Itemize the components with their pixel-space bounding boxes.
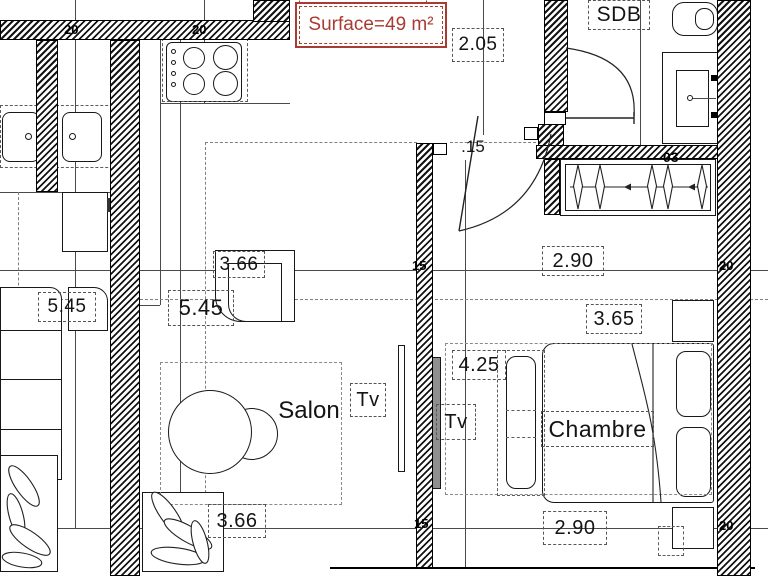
nightstand-zone-box	[658, 526, 684, 556]
room-label-sdb: SDB	[588, 0, 650, 30]
wall-right	[717, 0, 751, 576]
entry-door-leaf	[459, 116, 478, 231]
wall-party	[110, 40, 140, 576]
salon-zone-outline	[160, 362, 342, 505]
sofa-section	[0, 379, 62, 430]
wall-sdb-left	[544, 0, 568, 112]
room-label-chambre: Chambre	[541, 411, 654, 447]
dimension-partition-thickness: .15	[453, 136, 493, 158]
grid-line-left	[75, 0, 76, 528]
dimension-chambre-depth: 4.25	[452, 350, 506, 380]
dashed-line-hall-a	[205, 142, 417, 143]
toilet-bowl	[695, 8, 714, 30]
wall-thickness-label: 20	[719, 518, 733, 533]
wall-center-partition	[416, 143, 433, 568]
surface-area-badge: Surface=49 m²	[295, 2, 447, 48]
stove-zone-box	[162, 38, 248, 102]
wall-top	[0, 20, 290, 40]
wall-dressing-top	[536, 145, 718, 159]
dimension-dressing-width: 2.90	[542, 246, 604, 276]
wall-thickness-label: 20	[64, 22, 78, 37]
wardrobe-inner	[565, 164, 711, 211]
bottom-facade-line	[330, 567, 755, 569]
kitchen-counter-step	[140, 305, 160, 306]
dimension-entry-width: 2.05	[452, 28, 504, 62]
wall-thickness-label: 20	[192, 22, 206, 37]
wall-thickness-label: 20	[719, 258, 733, 273]
nightstand	[672, 300, 714, 342]
label-tv-chambre: Tv	[436, 404, 476, 440]
wall-top-corner	[253, 0, 290, 22]
plant-pot	[0, 455, 58, 572]
fridge	[62, 192, 108, 252]
wall-thickness-label: 15	[412, 258, 426, 273]
dresser-divider	[506, 437, 536, 438]
surface-area-label: Surface=49 m²	[299, 6, 443, 44]
floor-plan: Surface=49 m² 2.05 SDB .15 2.90 5.45 5.4…	[0, 0, 768, 576]
door-jamb	[544, 112, 566, 125]
shower-valve-line	[693, 98, 716, 99]
sink-zone-box	[56, 105, 118, 168]
room-label-salon: Salon	[272, 396, 346, 426]
dimension-chambre-width: 2.90	[543, 511, 607, 545]
bathroom-door-swing-arc	[566, 48, 634, 116]
kitchen-counter-edge	[160, 40, 161, 305]
dimension-bed-width: 3.65	[586, 304, 642, 334]
door-jamb	[524, 127, 538, 140]
wall-thickness-label: 03	[663, 149, 679, 165]
label-tv-salon: Tv	[350, 383, 386, 417]
dresser-divider	[506, 410, 536, 411]
door-jamb	[433, 143, 447, 155]
wall-left-stub	[36, 40, 58, 192]
grid-line-entry	[483, 0, 484, 135]
wall-thickness-label: 15	[414, 516, 428, 531]
dimension-salon-feature: 3.66	[213, 251, 265, 278]
wall-dressing-left	[544, 159, 560, 215]
dimension-salon-width: 3.66	[208, 504, 266, 538]
sofa-section	[0, 330, 62, 380]
dimension-salon-depth: 5.45	[168, 290, 234, 326]
dimension-neighbor-salon-depth: 5.45	[38, 292, 96, 322]
bathroom-door-leaf	[566, 112, 634, 124]
tv-unit-salon	[398, 345, 405, 472]
